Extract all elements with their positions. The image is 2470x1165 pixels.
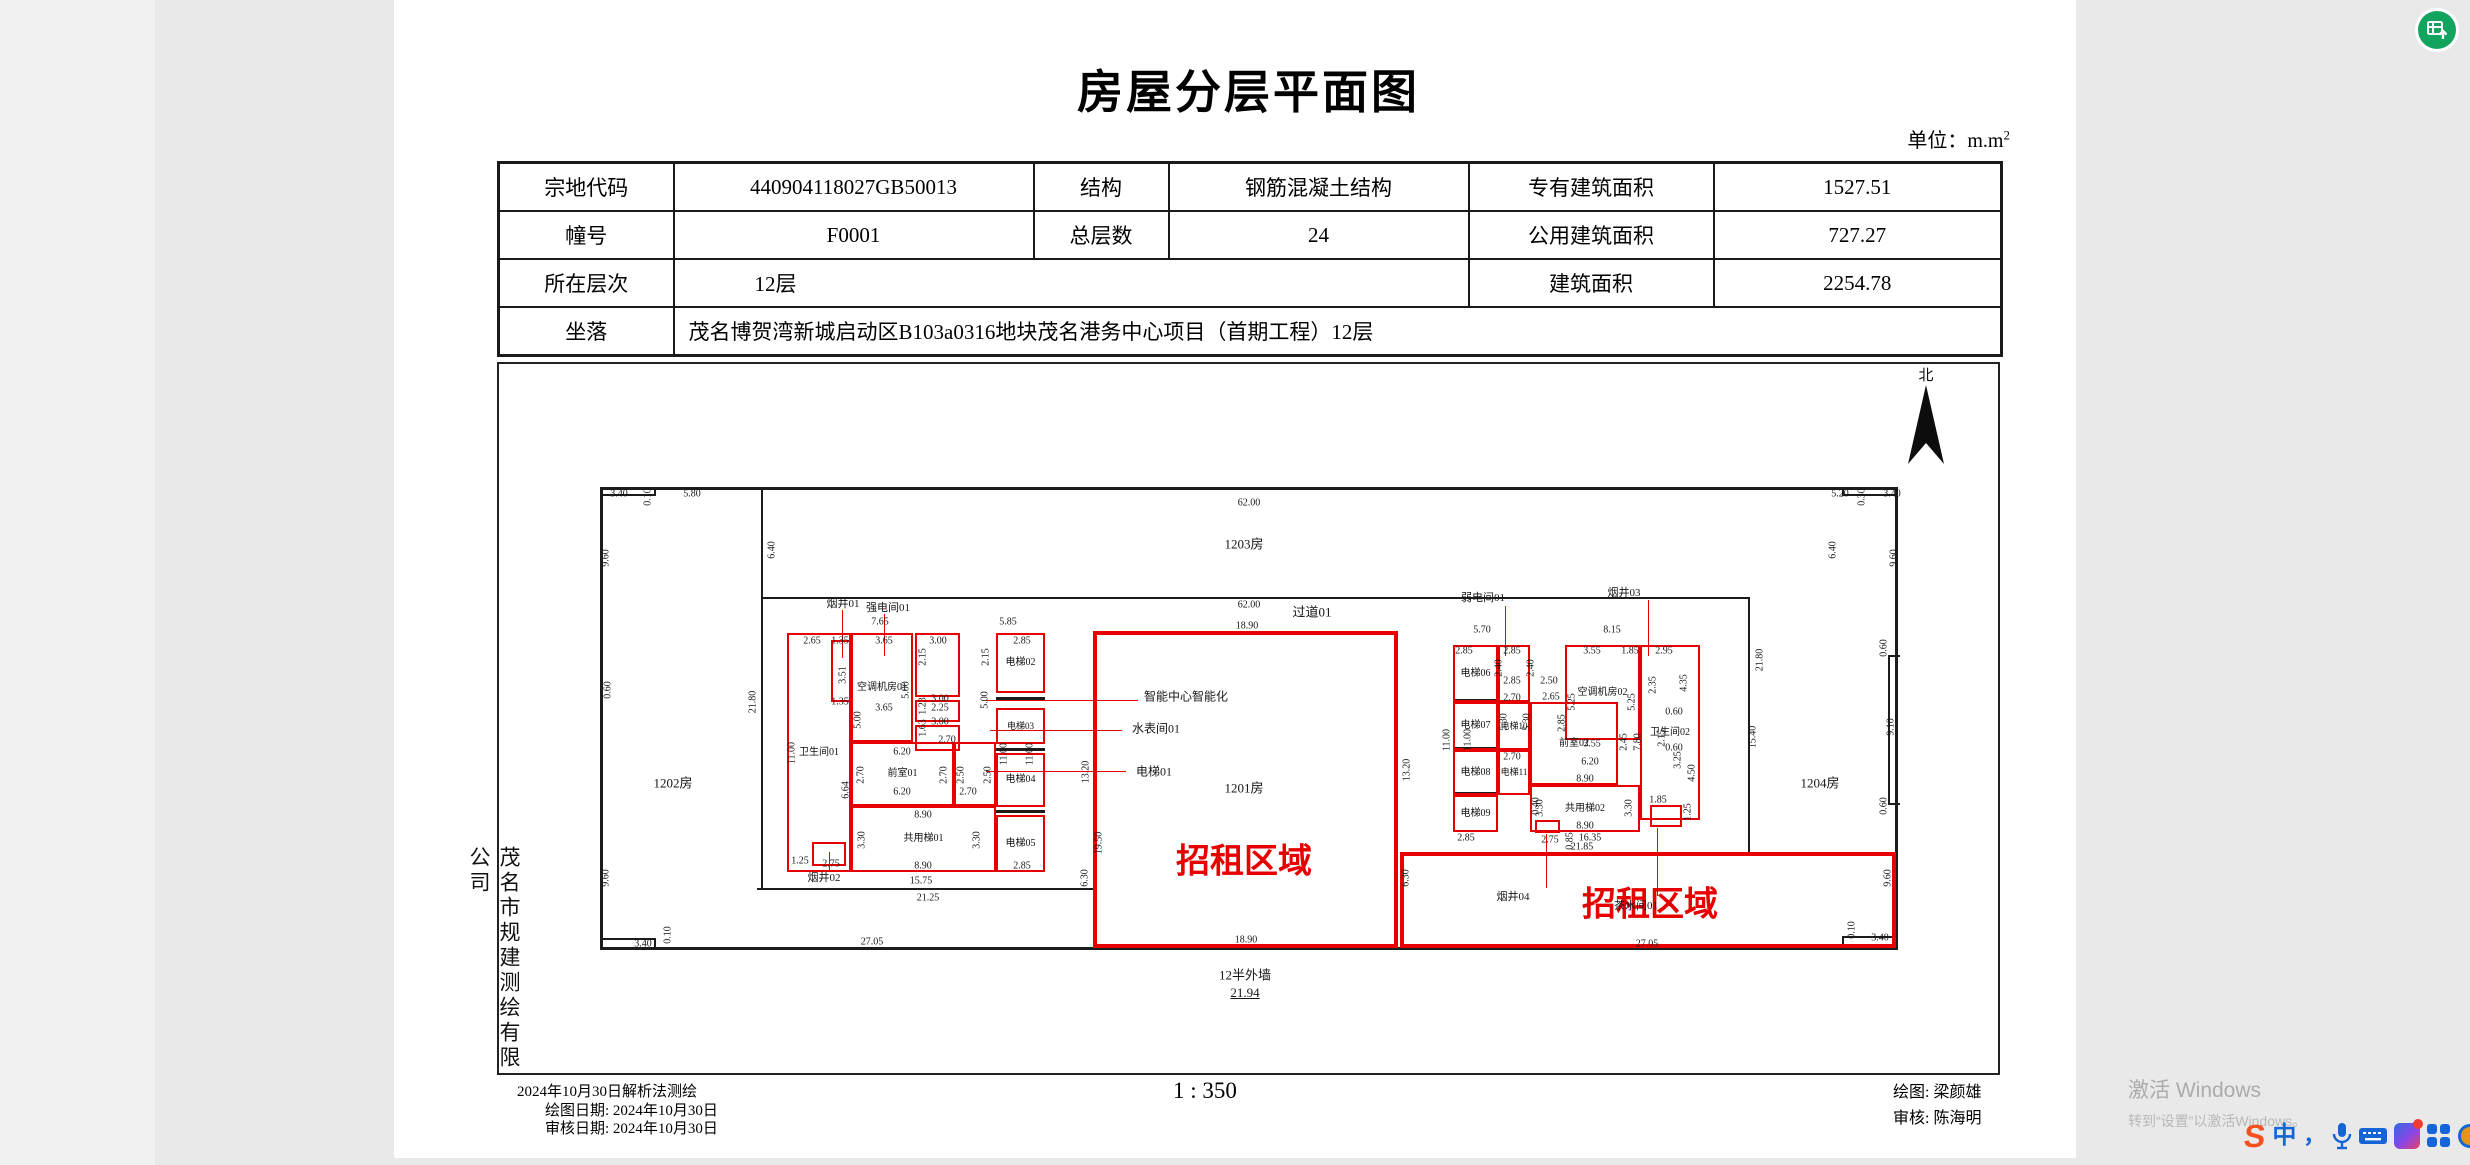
table-row: 坐落 茂名博贺湾新城启动区B103a0316地块茂名港务中心项目（首期工程）12… — [499, 307, 2002, 356]
cell-label: 公用建筑面积 — [1469, 211, 1714, 259]
input-method-toolbar: S 中 ， — [2244, 1112, 2470, 1160]
background-strip — [0, 0, 155, 1165]
cell-value: 1527.51 — [1714, 163, 2002, 212]
page-title: 房屋分层平面图 — [497, 56, 2000, 122]
grid-glyph — [2427, 1124, 2451, 1148]
table-row: 幢号 F0001 总层数 24 公用建筑面积 727.27 — [499, 211, 2002, 259]
cell-value: 2254.78 — [1714, 259, 2002, 307]
unit-superscript: 2 — [2004, 127, 2011, 142]
cell-value: F0001 — [674, 211, 1034, 259]
cell-value: 钢筋混凝土结构 — [1169, 163, 1469, 212]
shirt-glyph — [2394, 1123, 2420, 1149]
cell-label: 坐落 — [499, 307, 674, 356]
chinese-mode-icon[interactable]: 中 — [2272, 1124, 2296, 1148]
skin-icon[interactable] — [2394, 1123, 2420, 1149]
cell-label: 结构 — [1034, 163, 1169, 212]
sogou-s-glyph: S — [2244, 1120, 2267, 1152]
north-label: 北 — [1904, 364, 1948, 385]
table-row: 宗地代码 440904118027GB50013 结构 钢筋混凝土结构 专有建筑… — [499, 163, 2002, 212]
cell-value: 727.27 — [1714, 211, 2002, 259]
cell-label: 所在层次 — [499, 259, 674, 307]
keyboard-icon[interactable] — [2359, 1126, 2387, 1146]
export-table-button[interactable] — [2418, 11, 2456, 49]
table-export-icon — [2426, 19, 2448, 41]
table-row: 所在层次 12层 建筑面积 2254.78 — [499, 259, 2002, 307]
survey-note: 2024年10月30日解析法测绘 — [517, 1080, 697, 1101]
cell-value: 24 — [1169, 211, 1469, 259]
unit-label: 单位：m.m2 — [1760, 124, 2010, 153]
watermark-line1: 激活 Windows — [2128, 1074, 2458, 1104]
comma-glyph: ， — [2303, 1125, 2325, 1147]
parcel-info-table: 宗地代码 440904118027GB50013 结构 钢筋混凝土结构 专有建筑… — [497, 161, 2003, 357]
cell-label: 建筑面积 — [1469, 259, 1714, 307]
badge-dot — [2413, 1119, 2423, 1129]
cell-label: 专有建筑面积 — [1469, 163, 1714, 212]
company-name-vertical: 茂名市规建测绘有限公司 — [464, 846, 524, 1082]
drawing-frame — [497, 362, 2000, 1075]
review-date: 审核日期: 2024年10月30日 — [545, 1117, 718, 1138]
microphone-icon[interactable] — [2332, 1122, 2352, 1150]
punctuation-icon[interactable]: ， — [2303, 1125, 2325, 1147]
partial-tray-icon[interactable] — [2458, 1124, 2470, 1148]
cell-value: 茂名博贺湾新城启动区B103a0316地块茂名港务中心项目（首期工程）12层 — [674, 307, 2002, 356]
toolbox-grid-icon[interactable] — [2427, 1124, 2451, 1148]
north-indicator: 北 — [1904, 364, 1948, 470]
mic-glyph — [2332, 1122, 2352, 1150]
cell-label: 幢号 — [499, 211, 674, 259]
drawing-scale: 1 : 350 — [1120, 1078, 1290, 1104]
cell-value: 440904118027GB50013 — [674, 163, 1034, 212]
cell-label: 宗地代码 — [499, 163, 674, 212]
zhong-glyph: 中 — [2272, 1124, 2296, 1148]
desktop-screenshot: 房屋分层平面图 单位：m.m2 宗地代码 440904118027GB50013… — [0, 0, 2470, 1165]
drafter: 绘图: 梁颜雄 — [1893, 1078, 1981, 1102]
north-arrow-icon — [1907, 385, 1945, 465]
unit-text: 单位：m.m — [1907, 130, 2003, 152]
keyboard-glyph — [2359, 1126, 2387, 1146]
cell-value: 12层 — [674, 259, 1469, 307]
sogou-input-icon[interactable]: S — [2244, 1120, 2265, 1152]
cell-label: 总层数 — [1034, 211, 1169, 259]
reviewer: 审核: 陈海明 — [1893, 1104, 1981, 1128]
partial-circle-glyph — [2458, 1124, 2470, 1148]
